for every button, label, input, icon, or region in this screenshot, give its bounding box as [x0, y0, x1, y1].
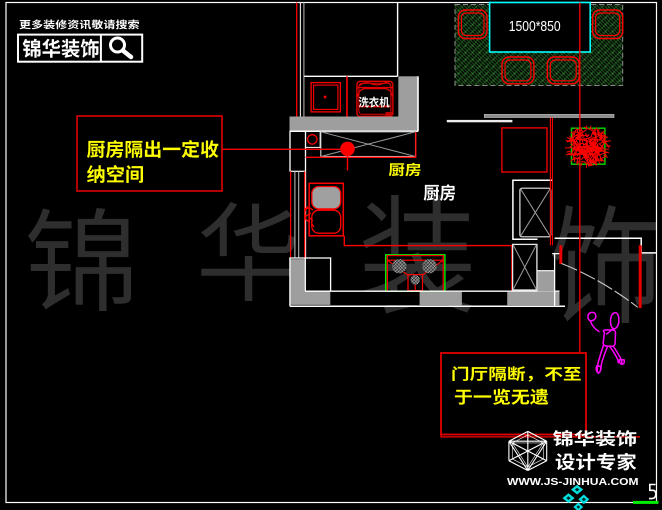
svg-text:1500*850: 1500*850	[509, 19, 561, 35]
svg-text:WWW.JS-JINHUA.COM: WWW.JS-JINHUA.COM	[507, 476, 639, 488]
